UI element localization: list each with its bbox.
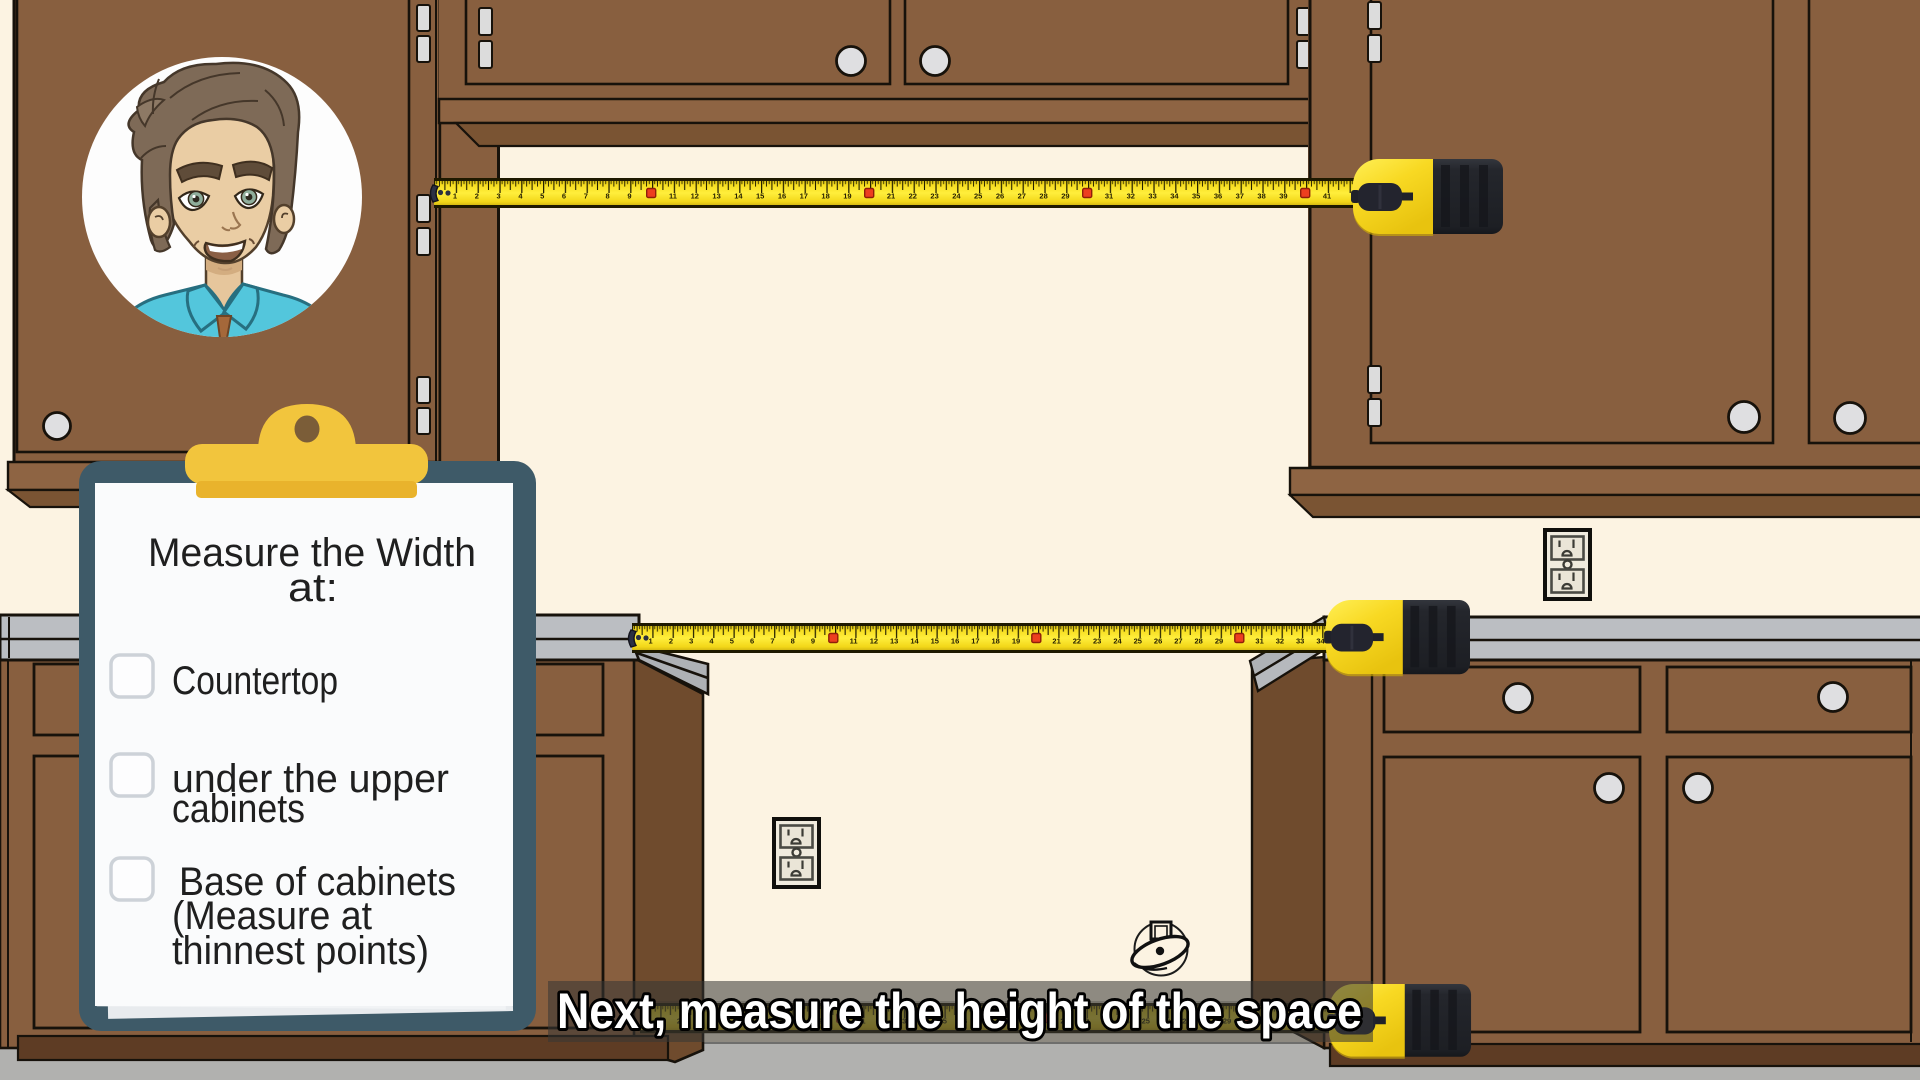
svg-text:23: 23: [930, 192, 938, 201]
svg-text:34: 34: [1170, 192, 1179, 201]
svg-text:17: 17: [971, 637, 979, 646]
svg-text:7: 7: [770, 637, 774, 646]
svg-text:15: 15: [756, 192, 764, 201]
svg-text:25: 25: [1134, 637, 1142, 646]
svg-text:19: 19: [843, 192, 851, 201]
svg-text:1: 1: [453, 192, 457, 201]
svg-text:21: 21: [887, 192, 895, 201]
svg-text:27: 27: [1018, 192, 1026, 201]
svg-text:13: 13: [712, 192, 720, 201]
svg-text:12: 12: [870, 637, 878, 646]
svg-text:22: 22: [1073, 637, 1081, 646]
svg-text:cabinets: cabinets: [172, 787, 305, 831]
svg-text:18: 18: [821, 192, 829, 201]
svg-text:1: 1: [649, 637, 653, 646]
svg-text:6: 6: [750, 637, 754, 646]
svg-text:8: 8: [606, 192, 610, 201]
svg-text:8: 8: [791, 637, 795, 646]
svg-text:41: 41: [1323, 192, 1331, 201]
svg-text:23: 23: [1093, 637, 1101, 646]
svg-text:11: 11: [669, 192, 677, 201]
svg-text:39: 39: [1279, 192, 1287, 201]
svg-text:7: 7: [584, 192, 588, 201]
svg-text:38: 38: [1257, 192, 1265, 201]
svg-text:32: 32: [1276, 637, 1284, 646]
svg-text:36: 36: [1214, 192, 1222, 201]
svg-text:13: 13: [890, 637, 898, 646]
svg-text:at:: at:: [288, 566, 338, 610]
svg-text:18: 18: [992, 637, 1000, 646]
svg-text:29: 29: [1061, 192, 1069, 201]
svg-text:14: 14: [734, 192, 743, 201]
svg-text:Next, measure the height of th: Next, measure the height of the space: [557, 983, 1362, 1039]
svg-text:32: 32: [1127, 192, 1135, 201]
svg-text:9: 9: [811, 637, 815, 646]
svg-text:Countertop: Countertop: [172, 659, 338, 703]
svg-text:11: 11: [850, 637, 858, 646]
svg-text:16: 16: [951, 637, 959, 646]
svg-text:29: 29: [1215, 637, 1223, 646]
svg-text:21: 21: [1052, 637, 1060, 646]
svg-text:35: 35: [1192, 192, 1200, 201]
svg-text:37: 37: [1236, 192, 1244, 201]
svg-text:24: 24: [952, 192, 961, 201]
svg-text:33: 33: [1148, 192, 1156, 201]
svg-text:26: 26: [996, 192, 1004, 201]
svg-text:33: 33: [1296, 637, 1304, 646]
svg-text:5: 5: [730, 637, 734, 646]
svg-text:14: 14: [910, 637, 919, 646]
svg-text:3: 3: [497, 192, 501, 201]
svg-text:26: 26: [1154, 637, 1162, 646]
svg-text:6: 6: [562, 192, 566, 201]
svg-text:17: 17: [800, 192, 808, 201]
svg-text:28: 28: [1195, 637, 1203, 646]
svg-text:2: 2: [475, 192, 479, 201]
svg-text:25: 25: [974, 192, 982, 201]
svg-text:15: 15: [931, 637, 939, 646]
svg-text:5: 5: [540, 192, 544, 201]
svg-text:24: 24: [1113, 637, 1122, 646]
svg-text:3: 3: [689, 637, 693, 646]
svg-text:2: 2: [669, 637, 673, 646]
svg-text:9: 9: [627, 192, 631, 201]
svg-text:31: 31: [1105, 192, 1113, 201]
svg-text:27: 27: [1174, 637, 1182, 646]
svg-text:31: 31: [1255, 637, 1263, 646]
svg-text:22: 22: [909, 192, 917, 201]
svg-text:16: 16: [778, 192, 786, 201]
svg-text:thinnest points): thinnest points): [172, 929, 429, 973]
svg-text:19: 19: [1012, 637, 1020, 646]
svg-text:12: 12: [691, 192, 699, 201]
svg-text:28: 28: [1039, 192, 1047, 201]
